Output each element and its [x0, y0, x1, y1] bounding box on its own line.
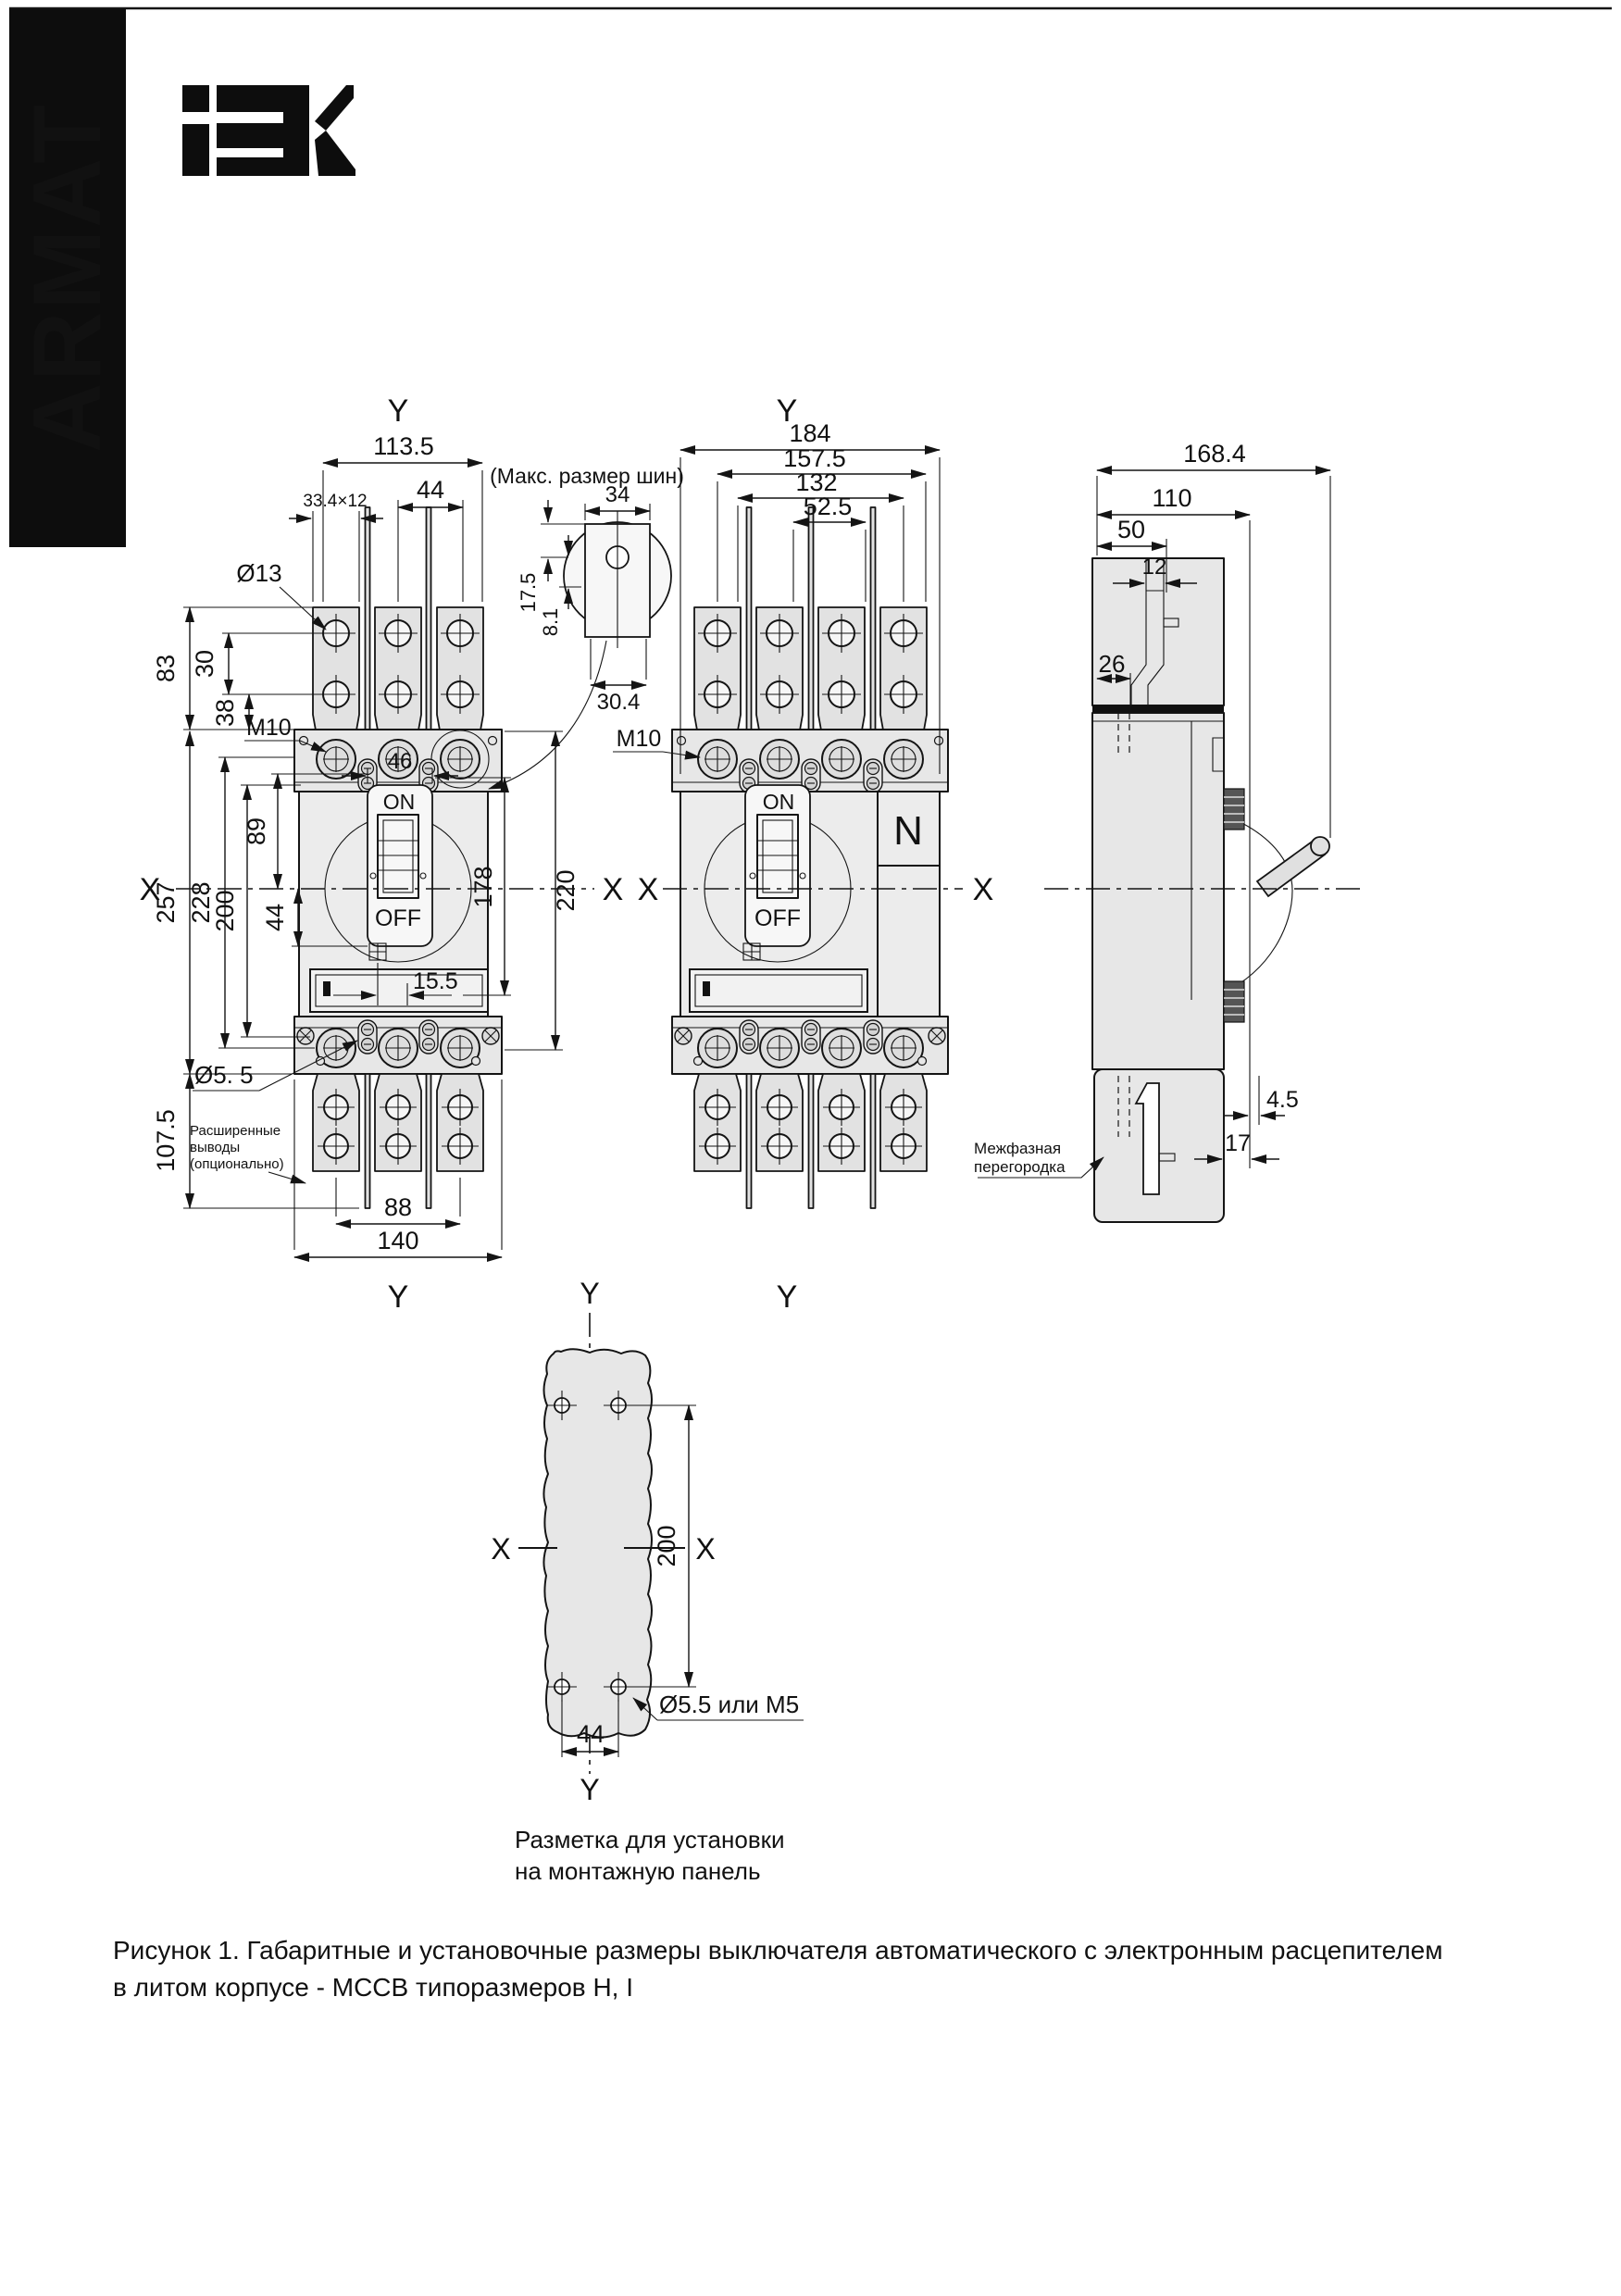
axis-x-right-panel: X [695, 1532, 715, 1566]
axis-x-left-4p: X [638, 872, 659, 907]
figure-caption: Рисунок 1. Габаритные и установочные раз… [113, 1936, 1442, 2002]
on-label-3p: ON [383, 790, 416, 814]
technical-drawing: ARMAT ON OFF [0, 0, 1621, 2296]
dim-178: 178 [469, 866, 497, 907]
dim-15.5: 15.5 [413, 968, 458, 994]
dim-50: 50 [1117, 516, 1145, 543]
axis-y-bottom-panel: Y [580, 1773, 599, 1806]
axis-x-right-4p: X [973, 872, 994, 907]
drawing-page: ARMAT ON OFF [0, 0, 1621, 2296]
dim-34: 34 [605, 482, 630, 507]
dim-46: 46 [388, 749, 413, 774]
dim-184: 184 [789, 419, 830, 447]
caption-line-1: Рисунок 1. Габаритные и установочные раз… [113, 1936, 1442, 1965]
caption-line-2: в литом корпусе - МССВ типоразмеров H, I [113, 1973, 633, 2002]
note-ext-2: выводы [190, 1140, 240, 1155]
dim-17.5: 17.5 [517, 573, 540, 613]
armat-logo-text: ARMAT [14, 103, 121, 453]
off-label-3p: OFF [375, 905, 421, 931]
dim-12: 12 [1142, 555, 1167, 580]
off-label-4p: OFF [754, 905, 801, 931]
dim-33.4x12: 33.4×12 [303, 492, 367, 511]
dim-hole-panel: Ø5.5 или М5 [659, 1691, 799, 1718]
panel-note-1: Разметка для установки [515, 1826, 785, 1853]
note-barrier-2: перегородка [974, 1158, 1066, 1176]
dim-m10-4p: M10 [617, 726, 662, 752]
panel-note-2: на монтажную панель [515, 1857, 761, 1885]
dim-113.5: 113.5 [373, 432, 434, 460]
dim-26: 26 [1099, 650, 1126, 678]
armat-banner: ARMAT [9, 9, 126, 547]
dim-107.5: 107.5 [152, 1109, 180, 1172]
dim-44-pitch: 44 [417, 476, 444, 504]
axis-y-bottom-3p: Y [388, 1279, 409, 1315]
busbar-title: (Макс. размер шин) [490, 464, 684, 488]
iek-logo [182, 85, 355, 176]
side-view [1044, 558, 1361, 1222]
dim-168.4: 168.4 [1183, 440, 1246, 468]
axis-x-left-panel: X [491, 1532, 510, 1566]
dim-38: 38 [211, 699, 239, 727]
note-ext-1: Расширенные [190, 1123, 281, 1139]
dim-30.4: 30.4 [597, 690, 641, 715]
dim-88: 88 [384, 1193, 412, 1221]
axis-x-right-3p: X [603, 872, 624, 907]
dim-110: 110 [1152, 484, 1191, 512]
dim-89: 89 [243, 817, 270, 845]
front-view-4p: N ON OFF [672, 507, 948, 1208]
dim-d5.5: Ø5. 5 [194, 1061, 254, 1089]
dim-200-panel: 200 [653, 1525, 680, 1566]
axis-y-bottom-4p: Y [777, 1279, 798, 1315]
n-pole-label: N [893, 808, 923, 854]
dim-8.1: 8.1 [539, 608, 562, 637]
front-view-3p: ON OFF [294, 507, 502, 1208]
on-label-4p: ON [763, 790, 795, 814]
dim-m10-3p: M10 [246, 715, 292, 741]
dim-17: 17 [1225, 1130, 1251, 1156]
dim-220: 220 [552, 869, 580, 911]
axis-y-top-panel: Y [580, 1277, 599, 1310]
dim-52.5: 52.5 [804, 493, 853, 520]
dim-44v: 44 [261, 904, 289, 931]
dim-200: 200 [211, 890, 239, 931]
dim-140: 140 [377, 1227, 418, 1254]
dim-44-panel: 44 [577, 1720, 605, 1748]
axis-y-top-3p: Y [388, 393, 409, 429]
dim-83: 83 [152, 655, 180, 682]
dim-30: 30 [191, 650, 218, 678]
dim-4.5: 4.5 [1266, 1087, 1299, 1113]
dim-d13: Ø13 [236, 559, 281, 587]
note-barrier-1: Межфазная [974, 1140, 1061, 1157]
note-ext-3: (опционально) [190, 1156, 284, 1172]
mounting-panel-view: Y X X 200 Ø5.5 или М5 44 Y Разметка для … [491, 1277, 804, 1885]
axis-x-left-3p: X [140, 872, 161, 907]
